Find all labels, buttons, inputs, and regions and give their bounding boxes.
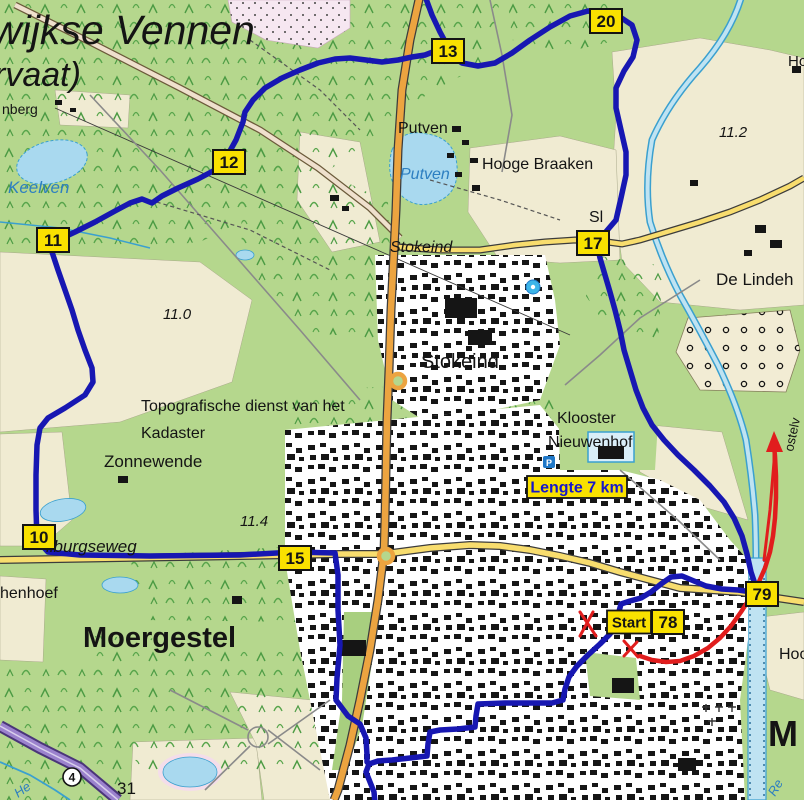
label-stokeind-village: Stokeind (421, 351, 499, 373)
label-oisterwijkse-vennen: wijkse Vennen (0, 7, 255, 53)
roundabout-south (379, 549, 393, 563)
label-henhoef: henhoef (0, 585, 58, 602)
label-klooster-1: Klooster (557, 410, 616, 427)
label-height-11-4: 11.4 (240, 513, 268, 530)
label-kadaster-credit-1: Topografische dienst van het (141, 398, 345, 415)
label-sl-fragment: Sl (589, 209, 603, 226)
waypoint-number: 17 (584, 234, 603, 253)
label-moergestel: Moergestel (83, 622, 236, 654)
poi-icon (526, 280, 540, 294)
waypoint-marker-79: 79 (746, 582, 778, 606)
waypoint-marker-11: 11 (37, 228, 69, 252)
topographic-map[interactable]: P wijkse Vennenrvaat)nbergKeelvenPutvenP… (0, 0, 804, 800)
label-vervaat: rvaat) (0, 56, 81, 94)
waypoint-marker-10: 10 (23, 525, 55, 549)
parking-icon: P (543, 456, 555, 468)
waypoint-number: 13 (439, 42, 458, 61)
label-height-11-2: 11.2 (719, 124, 748, 141)
waypoint-marker-17: 17 (577, 231, 609, 255)
waypoint-marker-12: 12 (213, 150, 245, 174)
label-stokeind-road-name: Stokeind (390, 239, 453, 256)
waypoint-marker-78: 78 (652, 610, 684, 634)
henhoef-pond (102, 577, 138, 593)
waypoint-number: 11 (44, 231, 62, 250)
waypoint-number: 20 (597, 12, 616, 31)
label-klooster-2: Nieuwenhof (548, 434, 633, 451)
label-de-lindeh: De Lindeh (716, 270, 794, 289)
small-pond (236, 250, 254, 260)
waypoint-marker-20: 20 (590, 9, 622, 33)
waypoint-marker-15: 15 (279, 546, 311, 570)
map-canvas[interactable]: P wijkse Vennenrvaat)nbergKeelvenPutvenP… (0, 0, 804, 800)
road-number-label: 4 (69, 771, 76, 785)
waypoint-number: 78 (659, 613, 678, 632)
label-road-31: 31 (117, 779, 136, 798)
label-height-11-0: 11.0 (163, 306, 192, 323)
moergestel-pond (163, 757, 217, 787)
waypoint-number: 12 (220, 153, 239, 172)
waypoint-number: 15 (286, 549, 305, 568)
road-number-badge: 4 (63, 768, 81, 786)
label-nberg: nberg (2, 101, 38, 117)
waypoint-number: 10 (30, 528, 49, 547)
route-length-badge: Lengte 7 km (527, 476, 627, 498)
svg-text:P: P (546, 458, 552, 468)
waypoint-number: 79 (753, 585, 772, 604)
roundabout-north (391, 374, 405, 388)
label-m-large-fragment: M (768, 713, 798, 754)
label-ho-topright: Ho (788, 53, 804, 70)
label-hooge-braaken: Hooge Braaken (482, 156, 593, 173)
start-badge: Start (607, 611, 651, 634)
label-tilburgseweg: ilburgseweg (46, 537, 137, 556)
route-length-badge-label: Lengte 7 km (530, 480, 623, 497)
waypoint-marker-13: 13 (432, 39, 464, 63)
label-kadaster-credit-2: Kadaster (141, 425, 206, 442)
label-keelven-lake-name: Keelven (8, 178, 69, 197)
label-hoo-fragment: Hoo (779, 646, 804, 663)
label-putven-hamlet: Putven (398, 120, 448, 137)
label-putven-lake-name: Putven (400, 166, 450, 183)
label-zonnewende: Zonnewende (104, 452, 202, 471)
start-badge-label: Start (612, 615, 646, 632)
